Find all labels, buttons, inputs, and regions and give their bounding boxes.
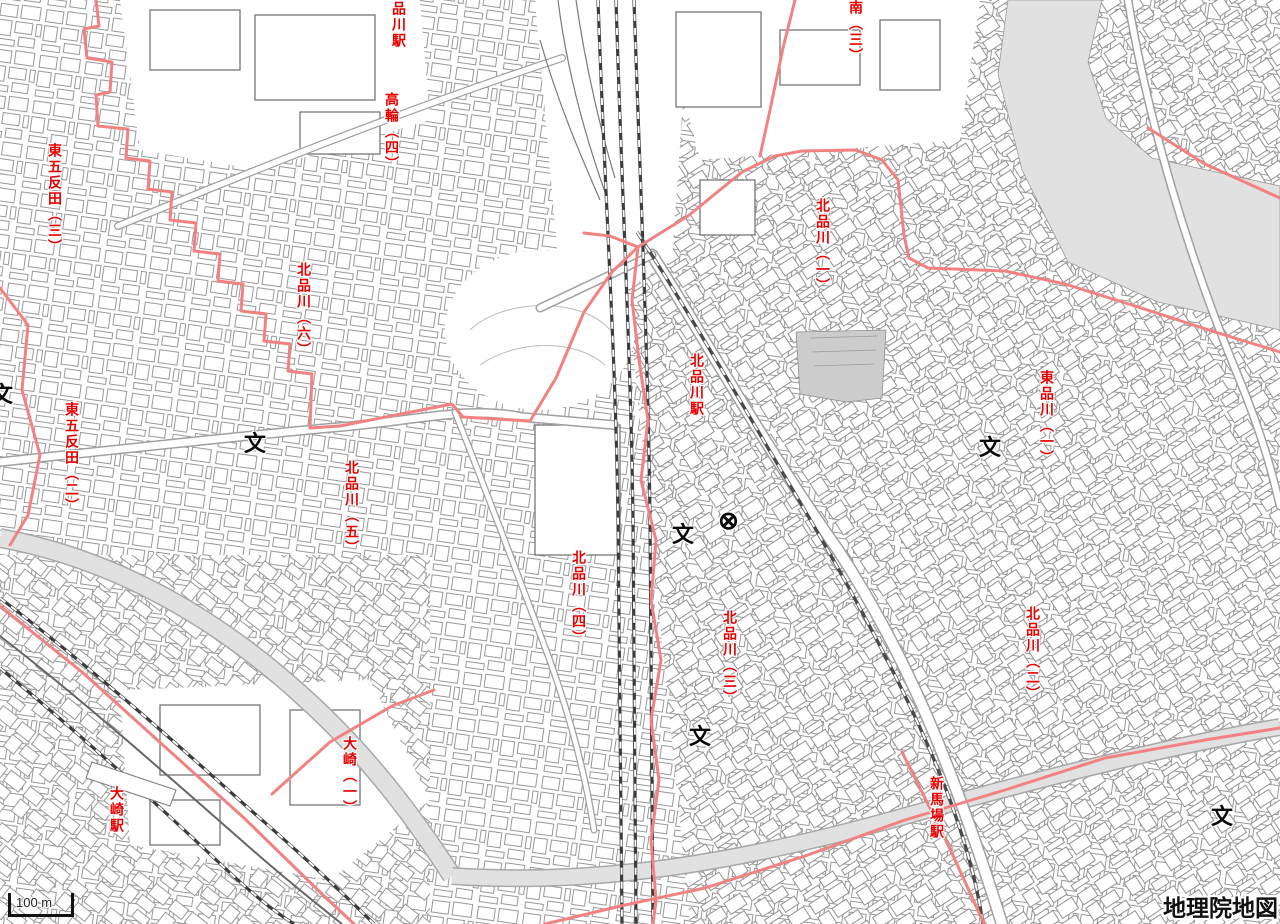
scale-bar-label: 100 m: [16, 895, 52, 910]
scale-bar: 100 m: [8, 893, 74, 917]
map-canvas[interactable]: 文 文 文 ⊗ 文 文 文 品川駅 高輪（四） 南（三） 東五反田（三） 北品川…: [0, 0, 1280, 924]
attribution-link[interactable]: 地理院地図: [1163, 889, 1278, 923]
boat-harbor: [796, 330, 886, 402]
map-tile-art: [0, 0, 1280, 924]
